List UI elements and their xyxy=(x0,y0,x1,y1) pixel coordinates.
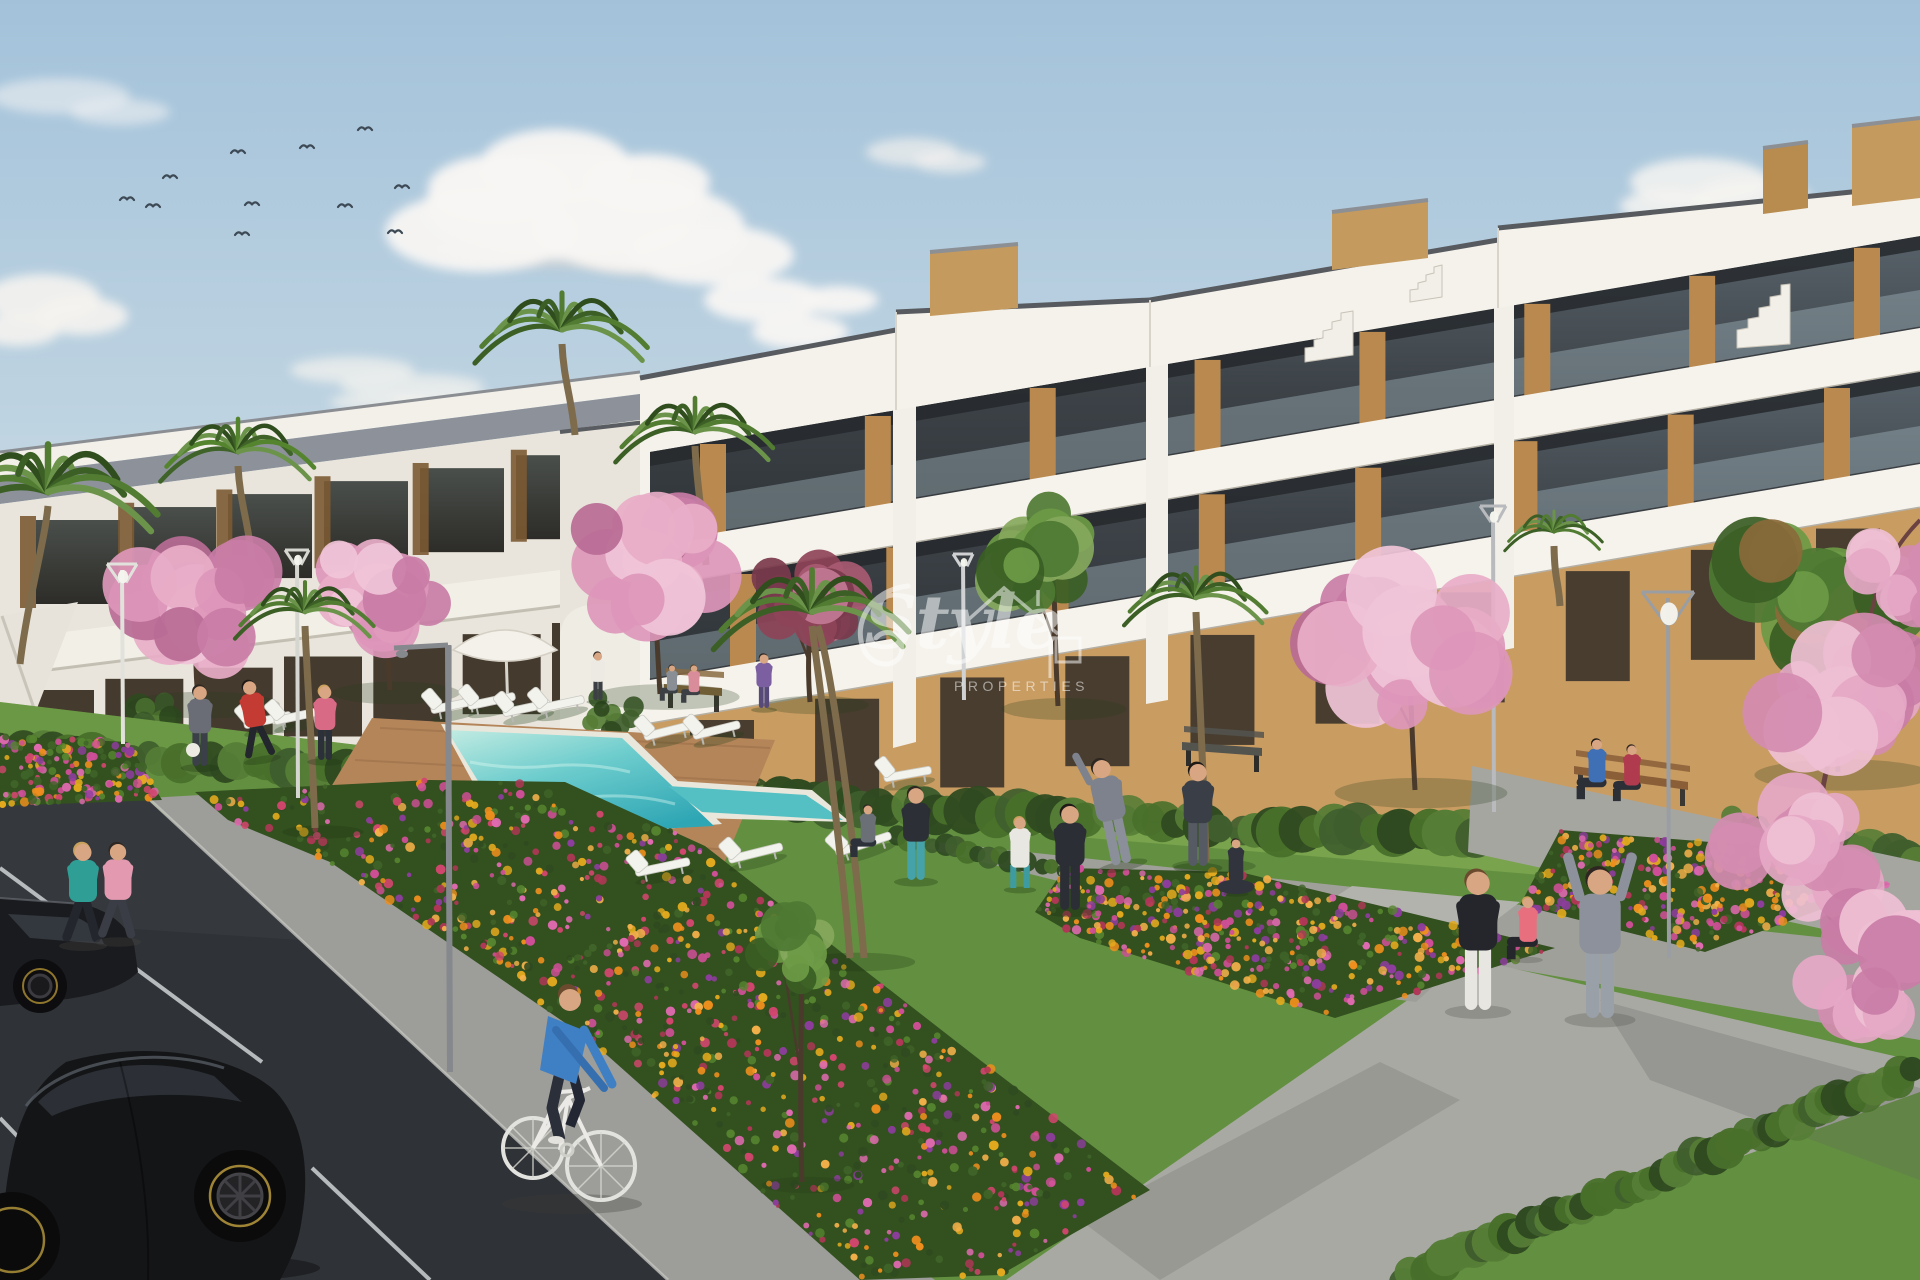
scene-svg xyxy=(0,0,1920,1280)
architectural-render: Style PROPERTIES xyxy=(0,0,1920,1280)
render-scene-canvas xyxy=(0,0,1920,1280)
